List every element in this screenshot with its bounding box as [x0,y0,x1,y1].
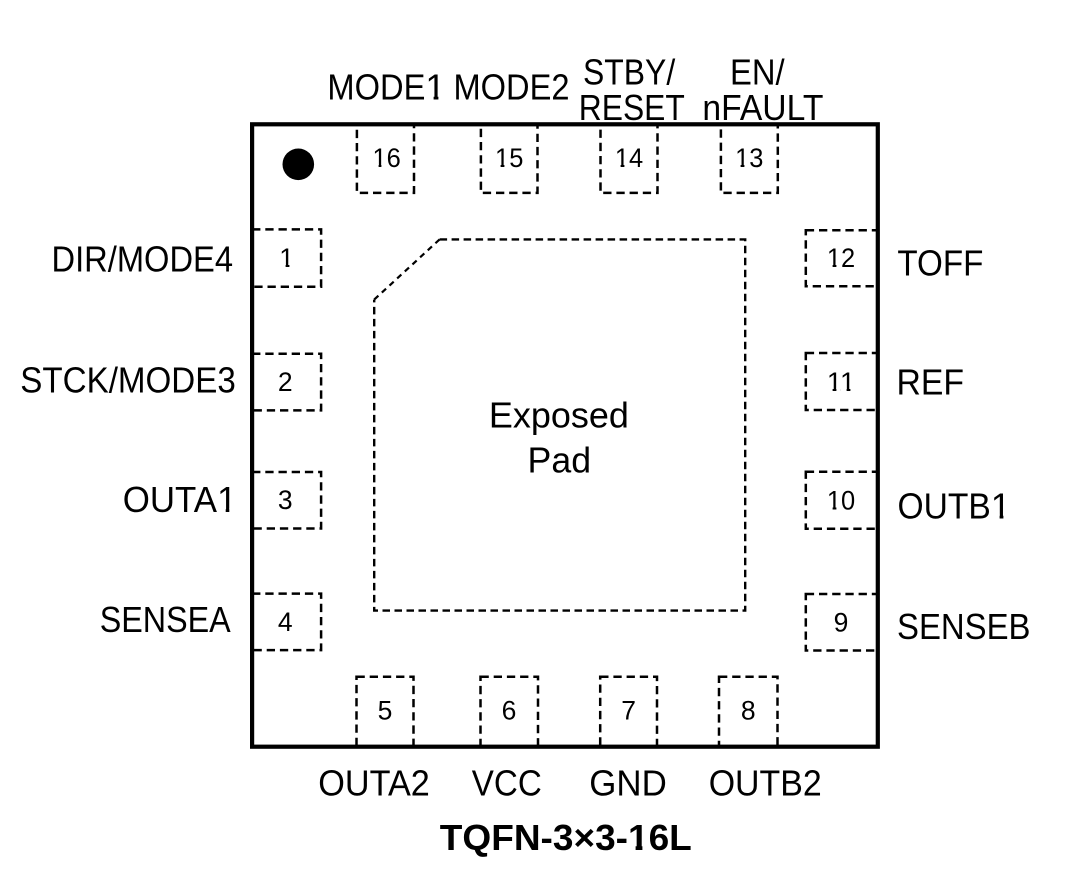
svg-text:DIR/MODE4: DIR/MODE4 [52,239,234,280]
svg-text:Pad: Pad [528,439,592,480]
svg-text:2: 2 [278,367,293,397]
svg-text:REF: REF [897,362,965,403]
svg-text:TOFF: TOFF [897,242,983,283]
svg-text:OUTB2: OUTB2 [709,762,822,803]
svg-text:OUTA: OUTA [123,479,217,520]
svg-text:1: 1 [991,485,1011,526]
svg-text:SENSEB: SENSEB [897,606,1031,647]
svg-text:RESET: RESET [579,87,685,128]
svg-text:MODE: MODE [327,67,425,108]
svg-text:MODE2: MODE2 [454,67,570,108]
svg-text:6: 6 [502,696,517,726]
svg-text:5: 5 [378,696,393,726]
svg-text:nFAULT: nFAULT [702,87,823,128]
svg-text:3: 3 [278,485,293,515]
svg-text:VCC: VCC [472,762,542,803]
svg-text:TQFN-3×3-16L: TQFN-3×3-16L [440,817,692,858]
svg-text:4: 4 [278,607,293,637]
svg-text:7: 7 [621,696,636,726]
svg-text:SENSEA: SENSEA [100,599,231,640]
svg-text:STCK/MODE3: STCK/MODE3 [20,360,236,401]
svg-text:9: 9 [834,607,849,637]
svg-text:Exposed: Exposed [489,395,629,436]
svg-text:OUTA2: OUTA2 [318,762,430,803]
svg-text:OUTB: OUTB [898,485,991,526]
svg-text:8: 8 [741,696,756,726]
svg-text:GND: GND [589,762,667,803]
